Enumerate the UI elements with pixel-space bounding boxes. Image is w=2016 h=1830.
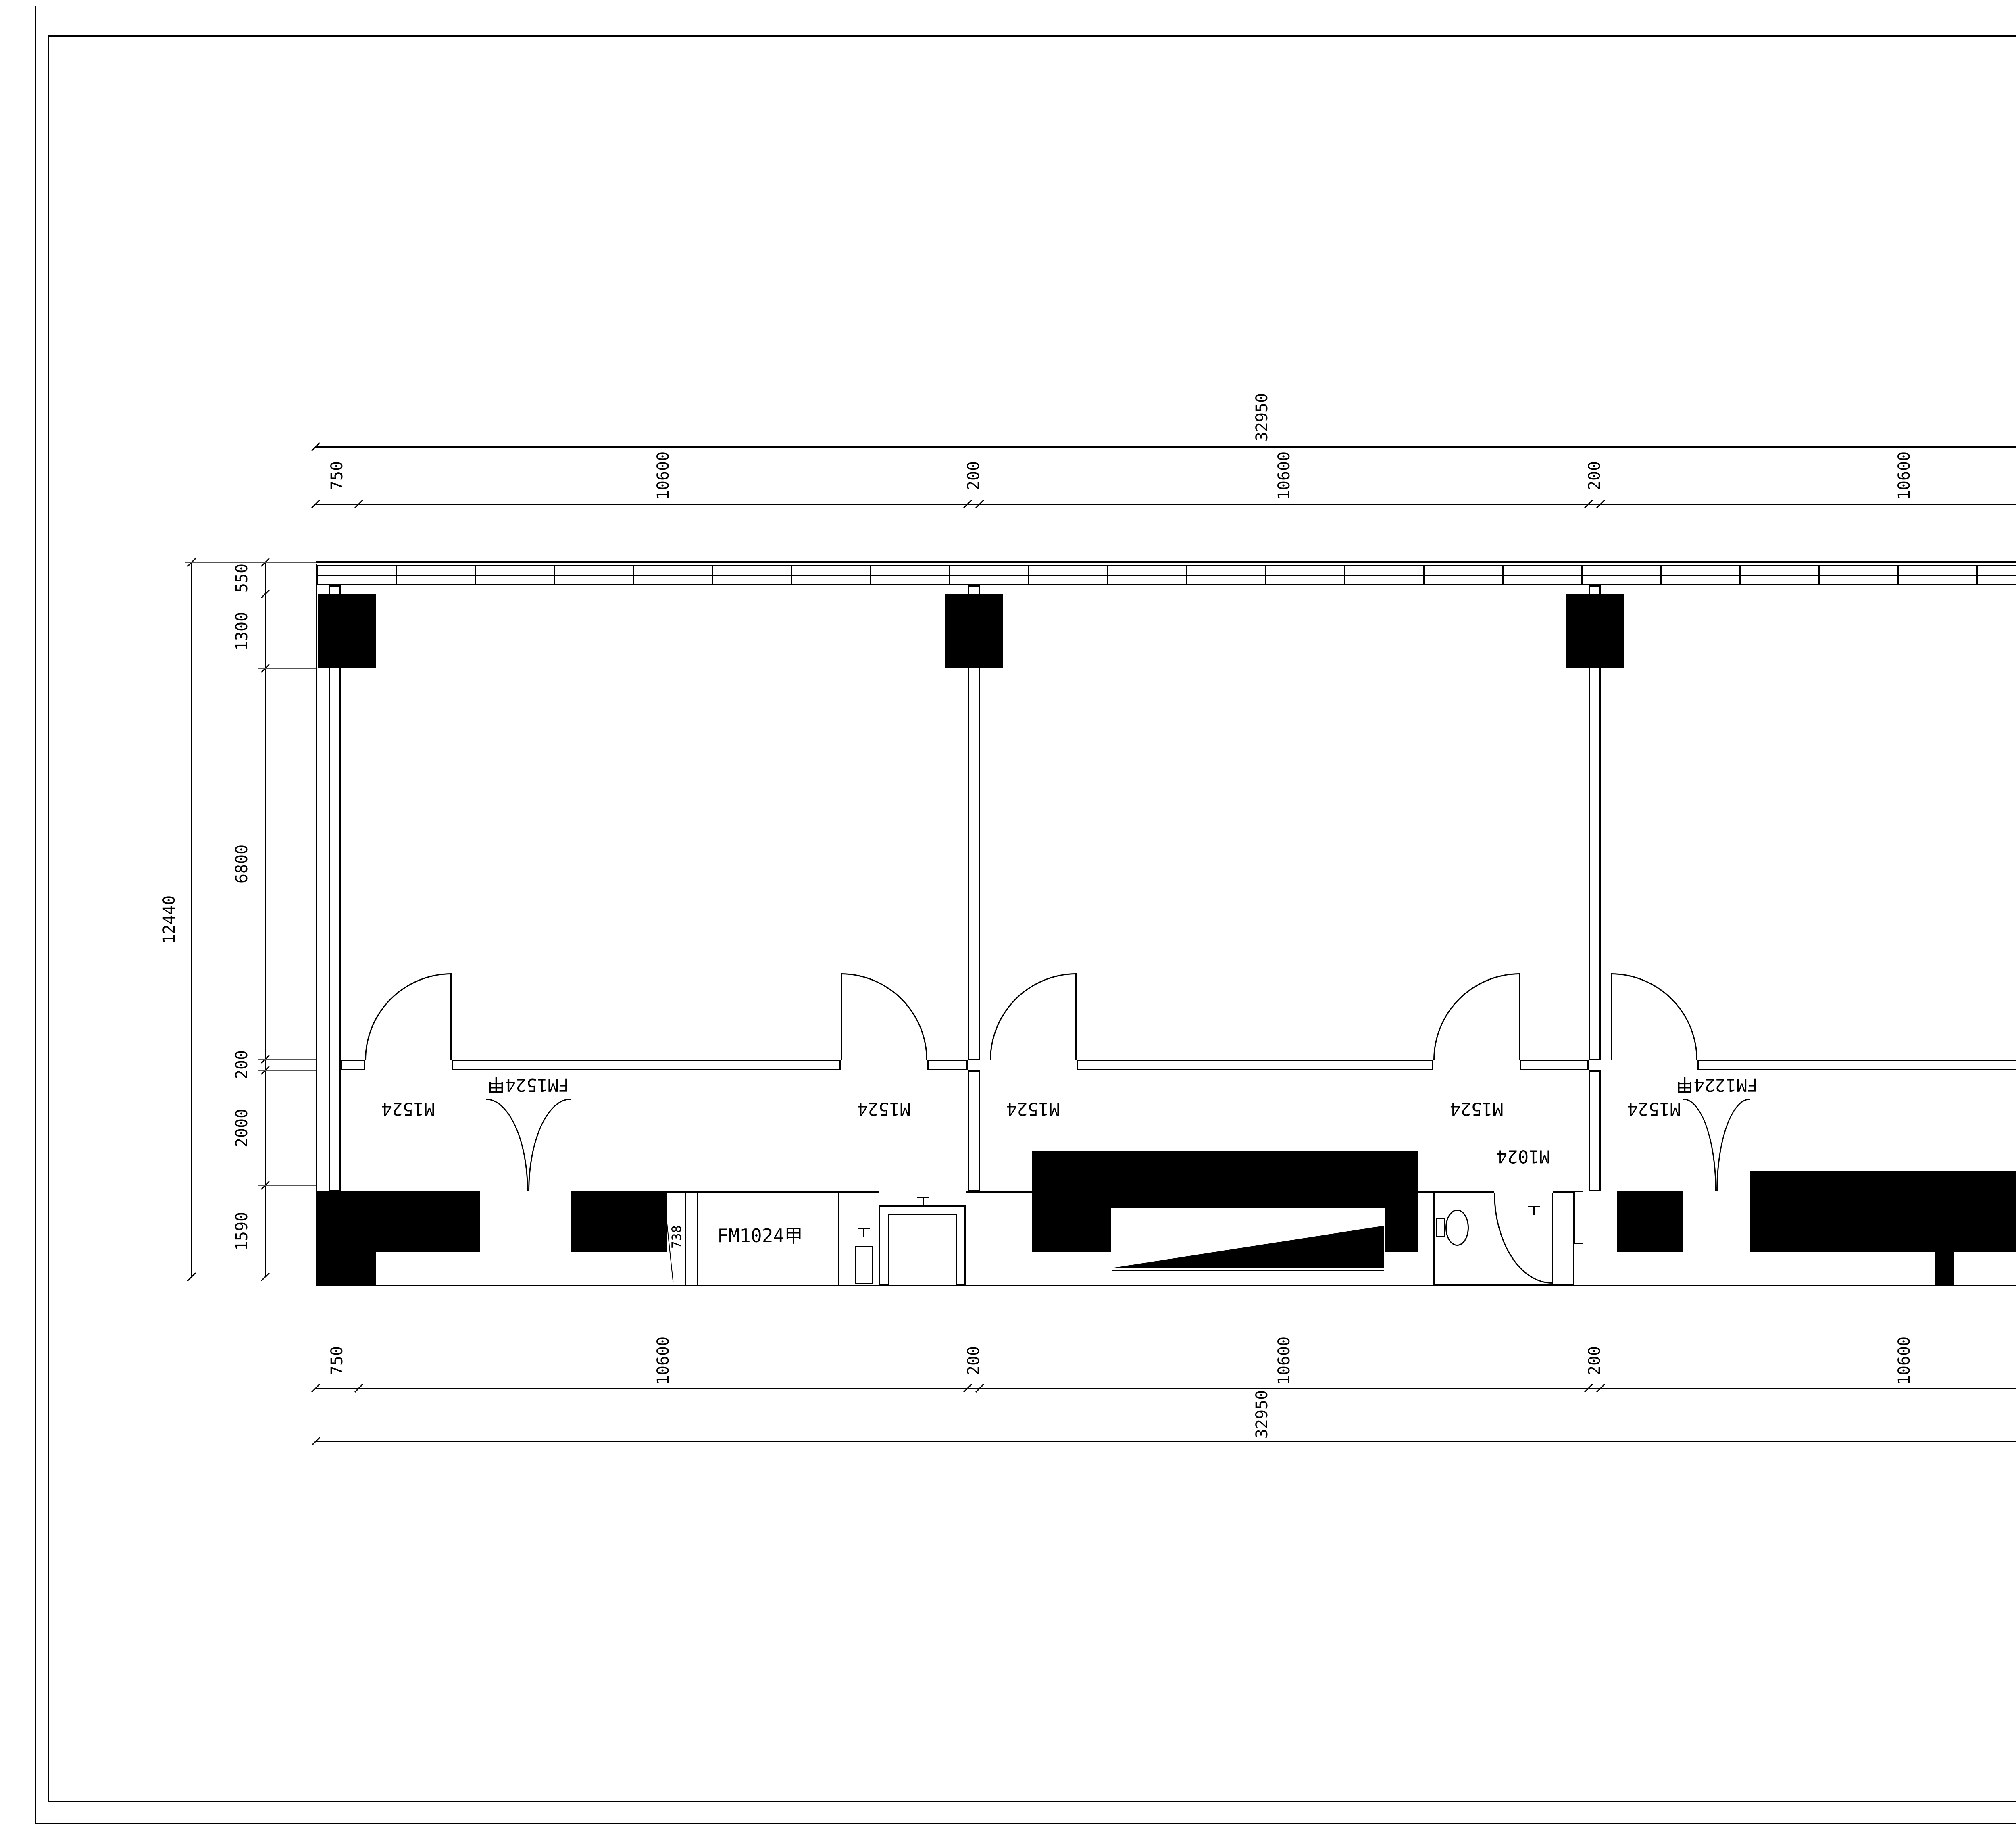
dim-left-seg: 550	[233, 564, 251, 593]
door-label-m1524: M1524	[381, 1099, 435, 1119]
dim-line	[316, 1388, 2016, 1389]
corridor-wall-line	[667, 1191, 879, 1193]
door-label-fm1024: FM1024甲	[717, 1221, 803, 1248]
door-leaf	[841, 973, 842, 1060]
partition	[838, 1191, 839, 1285]
column	[318, 594, 376, 668]
door-label-m1524: M1524	[857, 1099, 910, 1119]
dim-bottom-overall: 32950	[1253, 1390, 1271, 1439]
door-label-m1524: M1524	[1627, 1099, 1681, 1119]
dim-left-seg: 1590	[233, 1212, 251, 1251]
top-wall-edge	[316, 561, 2016, 563]
partition	[827, 1191, 827, 1285]
sprinkler-icon	[1528, 1203, 1540, 1216]
interior-wall	[927, 1060, 968, 1070]
ramp-wedge	[1112, 1226, 1384, 1268]
column	[945, 594, 1003, 668]
sprinkler-icon	[917, 1194, 929, 1206]
wall-poche	[571, 1191, 667, 1252]
plan-left-edge	[316, 564, 317, 1285]
drawing-sheet: 东方华美 Oriental Gorgeous ORIENTAL GORGEOUS…	[0, 0, 2016, 1830]
dim-top-overall: 32950	[1253, 393, 1271, 441]
partition	[697, 1191, 698, 1285]
door-leaf	[450, 973, 452, 1060]
interior-wall	[341, 1060, 365, 1070]
dim-bottom-seg: 10600	[654, 1337, 673, 1385]
interior-wall	[1077, 1060, 1433, 1070]
door-leaf	[1075, 973, 1077, 1060]
interior-wall	[1520, 1060, 1589, 1070]
dim-bottom-seg: 10600	[1895, 1337, 1914, 1385]
interior-wall	[1697, 1060, 2016, 1070]
toilet-icon	[1445, 1210, 1469, 1246]
dim-left-seg: 200	[233, 1050, 251, 1079]
dim-left-seg: 2000	[233, 1109, 251, 1147]
dim-bottom-seg: 10600	[1275, 1337, 1293, 1385]
dim-bottom-seg: 750	[328, 1346, 346, 1375]
wall-poche	[1617, 1191, 1683, 1252]
dim-left-seg: 1300	[233, 612, 251, 651]
dim-line	[316, 504, 2016, 505]
dim-top-seg: 10600	[654, 452, 673, 500]
room-inner-panel	[888, 1214, 957, 1285]
wall-poche	[1750, 1171, 2016, 1252]
corridor-wall-line	[966, 1191, 1032, 1193]
door-label-m1524: M1524	[1450, 1099, 1503, 1119]
partition	[685, 1191, 686, 1285]
interior-wall	[452, 1060, 841, 1070]
dim-left-overall: 12440	[160, 895, 179, 944]
door-label-fm1224: FM1224甲	[1676, 1074, 1758, 1099]
interior-wall-vertical	[968, 1070, 980, 1191]
dim-bottom-seg: 200	[964, 1346, 983, 1375]
door-dim-738: 738	[669, 1225, 684, 1249]
sprinkler-icon	[858, 1226, 870, 1238]
dim-line	[191, 562, 192, 1277]
dim-top-seg: 10600	[1275, 452, 1293, 500]
door-leaf	[1519, 973, 1520, 1060]
curtain-wall-midline	[316, 575, 2016, 576]
toilet-tank	[1436, 1218, 1445, 1237]
corridor-wall-line	[1418, 1191, 1434, 1193]
partition-stub	[1574, 1191, 1583, 1244]
wall-poche	[316, 1191, 480, 1252]
dim-top-seg: 200	[964, 461, 983, 490]
dim-line	[316, 446, 2016, 448]
dim-left-seg: 6800	[233, 845, 251, 883]
dim-bottom-seg: 200	[1585, 1346, 1604, 1375]
ground-line	[316, 1285, 2016, 1286]
door-label-m1524: M1524	[1006, 1099, 1060, 1119]
fixture-pedestal	[855, 1246, 873, 1284]
column	[1566, 594, 1624, 668]
door-label-fm1524: FM1524甲	[487, 1074, 569, 1099]
interior-wall-vertical	[1589, 1070, 1601, 1191]
dim-top-seg: 10600	[1895, 452, 1914, 500]
left-wall	[329, 585, 341, 1191]
wall-poche-step	[316, 1252, 376, 1285]
door-label-m1024: M1024	[1497, 1146, 1550, 1167]
ramp-baseline	[1112, 1270, 1384, 1271]
inner-border	[48, 35, 2016, 1802]
door-leaf	[1611, 973, 1612, 1060]
dim-top-seg: 200	[1585, 461, 1604, 490]
door-leaf	[1552, 1193, 1553, 1284]
dim-top-seg: 750	[328, 461, 346, 490]
dim-line	[316, 1441, 2016, 1442]
wall-poche-step	[1935, 1252, 1954, 1285]
